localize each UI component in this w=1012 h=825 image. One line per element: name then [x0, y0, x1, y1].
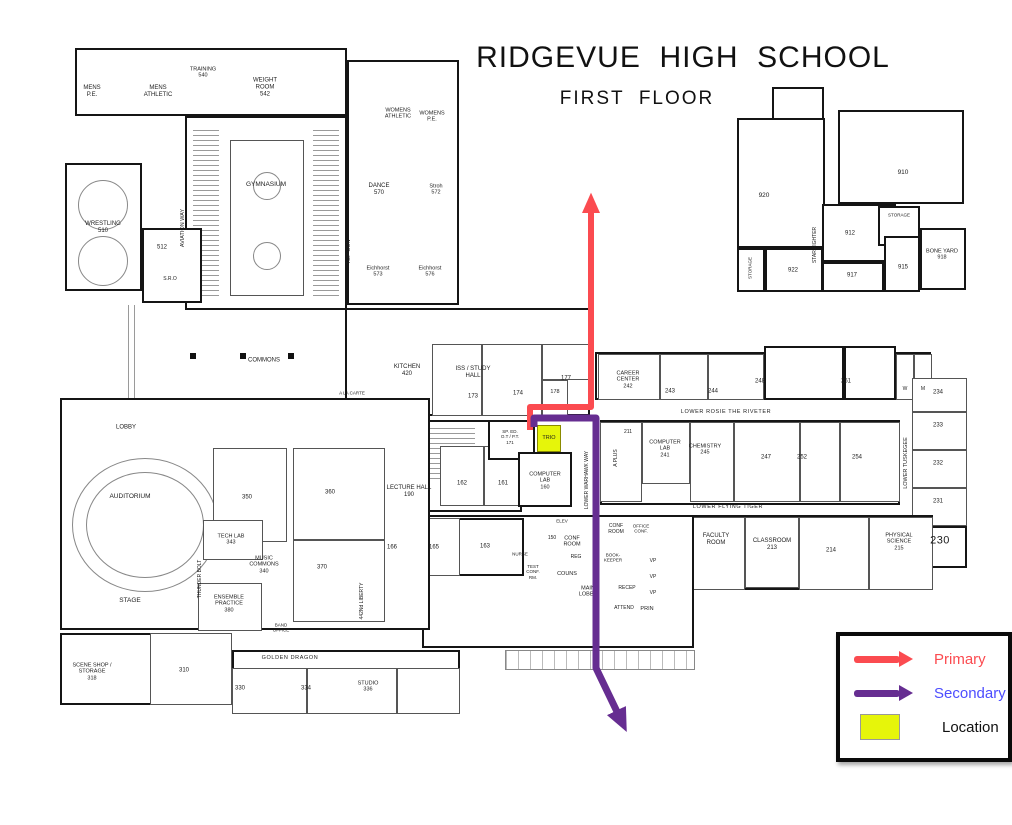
room-247 [734, 422, 800, 502]
entrance-steps [505, 650, 695, 670]
legend-item-location: Location [840, 710, 1008, 744]
room-245 [690, 422, 734, 502]
room-910 [838, 110, 964, 204]
room-244 [708, 354, 764, 400]
room-232 [912, 450, 967, 488]
commons-pillar-3 [288, 353, 294, 359]
floorplan-page: RIDGEVUE HIGH SCHOOL FIRST FLOOR MENS P.… [0, 0, 1012, 825]
room-160 [518, 452, 572, 507]
room-174 [482, 344, 542, 416]
commons-pillar-1 [190, 353, 196, 359]
gym-bleacher-right [313, 130, 339, 298]
room-252 [800, 422, 840, 502]
gym-court [230, 140, 304, 296]
room-177 [542, 344, 590, 380]
legend-label: Primary [934, 651, 986, 668]
room-173 [432, 344, 482, 416]
legend-label: Secondary [934, 685, 1006, 702]
room-label: COMMONS [248, 357, 280, 364]
legend-arrow-icon [854, 690, 900, 697]
room-233 [912, 412, 967, 450]
athletic-right-wing [347, 60, 459, 305]
room-techlab [203, 520, 263, 560]
wrestling-mat-bottom [78, 236, 128, 286]
room-label: LOWER WARHAWK WAY [585, 451, 591, 509]
room-248 [764, 346, 844, 400]
room-243 [660, 354, 708, 400]
legend-item-primary: Primary [840, 642, 1008, 676]
seating-arc-inner [86, 472, 204, 578]
room-251 [844, 346, 896, 400]
room-242 [598, 354, 660, 400]
room-512-block [142, 228, 202, 303]
athletic-top-block [75, 48, 347, 116]
legend-location-swatch [860, 714, 900, 740]
room-917 [822, 262, 884, 292]
room-241 [642, 422, 690, 484]
room-label: LOWER ROSIE THE RIVETER [681, 409, 771, 415]
room-213 [745, 517, 799, 588]
legend-item-secondary: Secondary [840, 676, 1008, 710]
legend-label: Location [942, 719, 999, 736]
room-234 [912, 378, 967, 412]
gym-circle-top [253, 172, 281, 200]
room-178 [542, 380, 568, 416]
legend-items: PrimarySecondaryLocation [840, 642, 1008, 744]
room-211-aplus [600, 422, 642, 502]
block-900-top [772, 87, 824, 120]
room-214 [799, 517, 869, 590]
room-370 [293, 540, 385, 622]
commons-pillar-2 [240, 353, 246, 359]
room-boneyard [920, 228, 966, 290]
room-162 [440, 446, 484, 506]
gym-circle-bottom [253, 242, 281, 270]
legend-arrow-icon [854, 656, 900, 663]
wrestling-mat-top [78, 180, 128, 230]
location-trio [537, 425, 561, 452]
room-336 [397, 668, 460, 714]
legend: PrimarySecondaryLocation [836, 632, 1012, 762]
room-360 [293, 448, 385, 540]
room-922 [765, 248, 823, 292]
room-920 [737, 118, 825, 248]
room-310 [150, 633, 232, 705]
room-330 [232, 668, 307, 714]
room-storage-900 [737, 248, 765, 292]
room-915 [884, 236, 920, 292]
room-215 [869, 517, 933, 590]
room-ensemble [198, 583, 262, 631]
room-faculty [688, 517, 745, 590]
room-334 [307, 668, 397, 714]
room-254 [840, 422, 900, 502]
room-label: LOWER TUSKEGEE [903, 437, 909, 489]
